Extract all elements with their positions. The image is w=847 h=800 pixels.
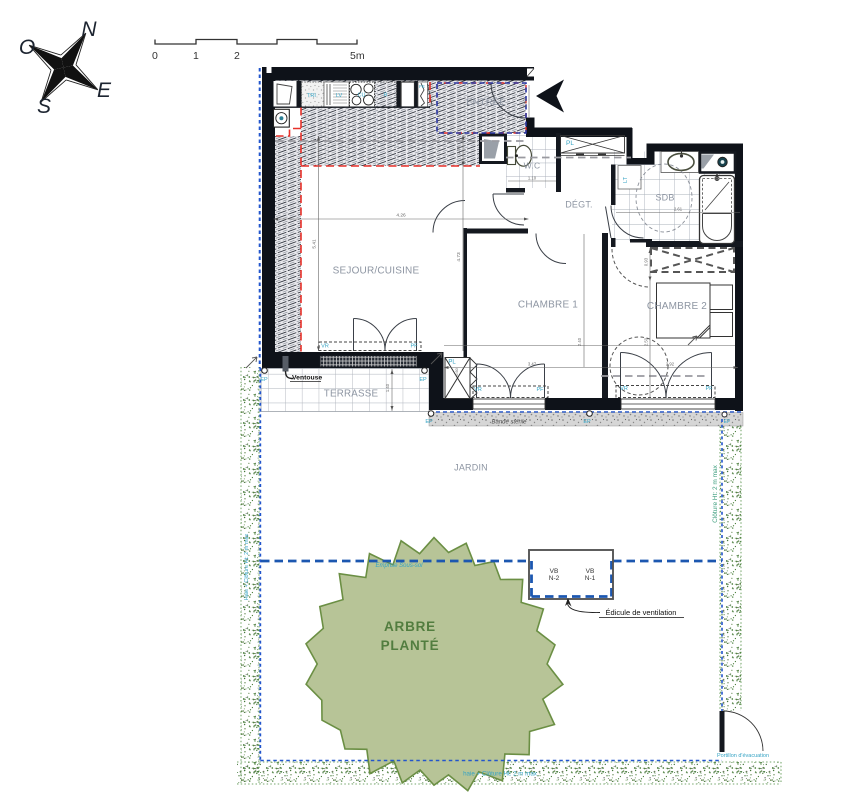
svg-text:N-1: N-1 [585,575,596,582]
svg-text:VR: VR [474,387,482,393]
svg-text:1.40: 1.40 [385,383,390,392]
svg-text:N-2: N-2 [549,575,560,582]
svg-text:0.60: 0.60 [455,368,459,375]
svg-text:Clôture Ht: 2 m max: Clôture Ht: 2 m max [712,464,719,523]
svg-text:2.61: 2.61 [674,207,683,212]
svg-text:EP: EP [419,377,427,383]
svg-text:CHAMBRE 1: CHAMBRE 1 [518,300,578,311]
svg-text:PLANTÉ: PLANTÉ [381,638,440,653]
svg-text:ARBRE: ARBRE [384,619,436,634]
svg-text:PF: PF [410,344,418,350]
svg-text:Ventouse: Ventouse [292,375,322,382]
svg-text:PL: PL [566,140,574,147]
svg-text:2.92: 2.92 [666,362,675,367]
svg-text:VB: VB [586,568,595,575]
svg-text:DÉGT.: DÉGT. [565,200,593,210]
svg-text:LV: LV [336,93,343,99]
svg-text:FE: FE [419,84,425,89]
svg-text:VR: VR [321,344,329,350]
svg-text:TRI: TRI [307,93,316,99]
svg-text:O: O [19,36,35,59]
svg-text:E: E [97,79,112,102]
svg-text:4.26: 4.26 [396,213,406,219]
svg-text:0: 0 [152,50,158,62]
svg-text:S: S [37,95,51,118]
svg-text:CHAMBRE 2: CHAMBRE 2 [647,301,707,312]
svg-text:Bande stérile: Bande stérile [491,420,527,426]
svg-text:5m: 5m [350,50,365,62]
svg-text:3.47: 3.47 [528,362,537,367]
svg-text:R: R [384,93,388,99]
svg-text:PF: PF [536,387,544,393]
svg-text:PF: PF [705,386,713,392]
svg-text:Portillon d'évacuation: Portillon d'évacuation [717,753,769,759]
svg-text:Édicule de ventilation: Édicule de ventilation [606,608,677,617]
svg-text:1.52: 1.52 [456,145,461,154]
svg-text:0.93: 0.93 [644,257,649,266]
svg-text:Haie + Clôture Ht: 2 m max: Haie + Clôture Ht: 2 m max [244,534,250,601]
svg-text:5.41: 5.41 [312,239,318,249]
svg-text:VB: VB [550,568,559,575]
svg-text:4.73: 4.73 [456,252,462,262]
svg-text:0.93: 0.93 [523,98,528,107]
svg-text:EP: EP [425,419,433,425]
svg-text:W.C: W.C [524,161,541,171]
svg-text:CU: CU [358,93,366,99]
svg-text:N: N [81,18,97,41]
svg-text:EP: EP [583,419,591,425]
svg-text:Emprise Sous-sol: Emprise Sous-sol [375,563,423,569]
svg-text:ENTRÉE: ENTRÉE [466,97,506,108]
svg-text:EP: EP [260,377,268,383]
svg-text:1.10: 1.10 [528,176,537,181]
svg-text:2.50: 2.50 [644,337,649,346]
svg-text:LT: LT [623,176,629,183]
svg-text:2: 2 [234,50,240,62]
svg-text:PL: PL [448,360,456,366]
svg-text:1: 1 [193,50,199,62]
svg-text:SEJOUR/CUISINE: SEJOUR/CUISINE [333,266,420,277]
svg-text:EP: EP [724,419,731,425]
svg-text:JARDIN: JARDIN [454,463,488,473]
svg-text:2.40: 2.40 [577,337,582,346]
svg-text:SDB: SDB [655,193,674,203]
svg-text:haie + Clôture Ht: 2 m max: haie + Clôture Ht: 2 m max [463,771,538,778]
svg-text:TERRASSE: TERRASSE [324,389,379,400]
svg-text:VR: VR [620,386,628,392]
